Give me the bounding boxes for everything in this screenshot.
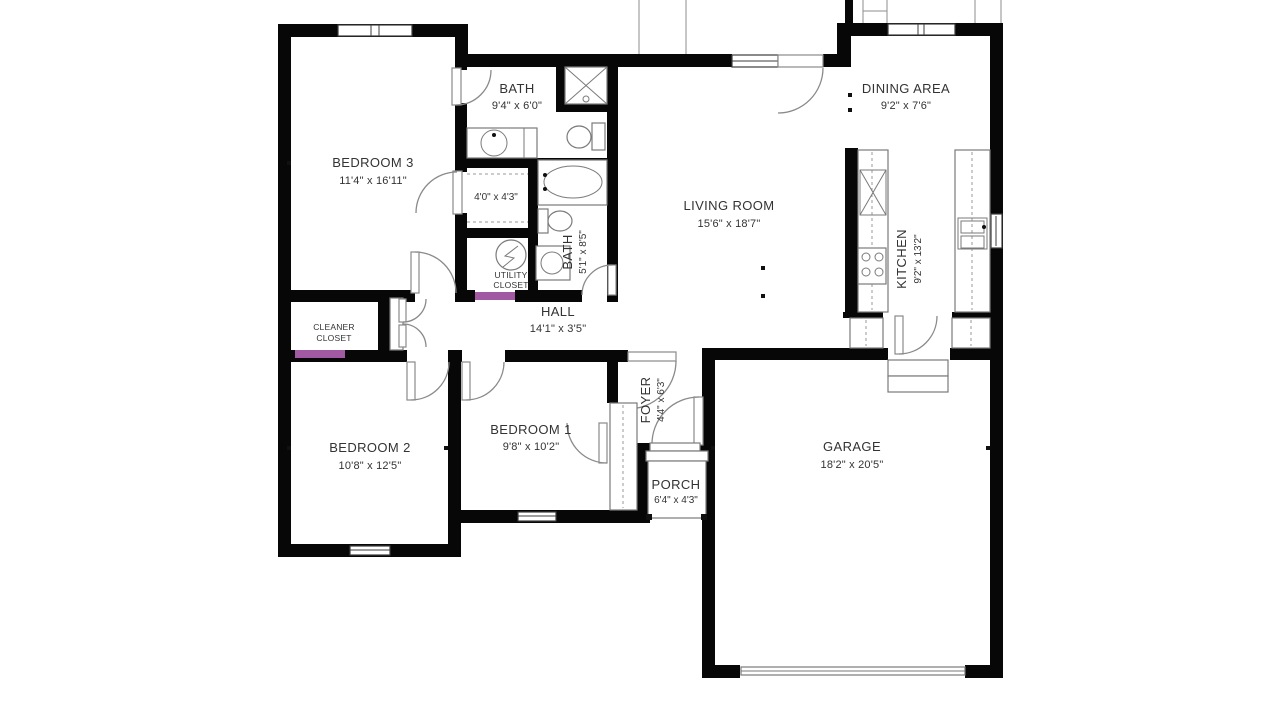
kitchen-right-counter xyxy=(955,150,990,312)
main-bath-vanity-sink xyxy=(467,128,537,158)
dining-window xyxy=(888,24,955,35)
room-cleaner-closet: CLEANER CLOSET xyxy=(313,322,355,343)
room-dims-bedroom3: 11'4" x 16'11" xyxy=(339,175,407,187)
stove xyxy=(858,248,886,284)
room-label-kitchen: KITCHEN xyxy=(894,229,909,289)
water-heater xyxy=(496,240,526,270)
room-dims-bedroom2: 10'8" x 12'5" xyxy=(339,460,402,472)
room-dims-kitchen: 9'2" x 13'2" xyxy=(913,234,924,284)
bedroom1-closet xyxy=(610,403,637,510)
floor-plan-svg: BEDROOM 3 11'4" x 16'11" BATH 9'4" x 6'0… xyxy=(0,0,1280,720)
bathtub xyxy=(538,160,607,205)
room-label-foyer: FOYER xyxy=(638,377,653,424)
room-label-bedroom2: BEDROOM 2 xyxy=(329,440,411,455)
room-label-bath-main: BATH xyxy=(499,81,534,96)
living-room-window xyxy=(732,55,778,67)
room-label-cleaner-line2: CLOSET xyxy=(316,333,351,343)
room-label-porch: PORCH xyxy=(652,477,701,492)
room-dims-dining-area: 9'2" x 7'6" xyxy=(881,100,931,112)
cleaner-closet-sliding-door xyxy=(295,350,345,358)
room-label-utility-line1: UTILITY xyxy=(494,270,527,280)
room-label-garage: GARAGE xyxy=(823,439,881,454)
utility-closet-sliding-door xyxy=(475,292,515,300)
room-label-bedroom3: BEDROOM 3 xyxy=(332,155,414,170)
room-dims-porch: 6'4" x 4'3" xyxy=(654,495,698,506)
room-label-utility-line2: CLOSET xyxy=(493,280,528,290)
room-dims-bath-hall: 5'1" x 8'5" xyxy=(578,230,589,274)
room-porch: PORCH 6'4" x 4'3" xyxy=(652,477,701,506)
room-label-dining-area: DINING AREA xyxy=(862,81,950,96)
bedroom2-window xyxy=(350,546,390,555)
bedroom1-window xyxy=(518,512,556,521)
room-utility-closet: UTILITY CLOSET xyxy=(493,270,528,290)
room-dims-hall: 14'1" x 3'5" xyxy=(530,323,587,335)
shower xyxy=(565,67,607,104)
room-dims-closet-bedroom3: 4'0" x 4'3" xyxy=(474,192,518,203)
room-dims-bedroom1: 9'8" x 10'2" xyxy=(503,441,560,453)
kitchen-window xyxy=(991,214,1002,248)
garage-steps xyxy=(888,360,948,392)
room-dims-living-room: 15'6" x 18'7" xyxy=(698,218,761,230)
room-label-bath-hall: BATH xyxy=(560,234,575,269)
room-label-living-room: LIVING ROOM xyxy=(683,198,774,213)
room-label-cleaner-line1: CLEANER xyxy=(313,322,355,332)
room-bath-hall: BATH 5'1" x 8'5" xyxy=(560,230,589,274)
room-closet-bedroom3: 4'0" x 4'3" xyxy=(474,192,518,203)
room-foyer: FOYER 4'4" x 6'3" xyxy=(638,377,667,424)
room-dims-foyer: 4'4" x 6'3" xyxy=(656,378,667,422)
room-dims-bath-main: 9'4" x 6'0" xyxy=(492,100,542,112)
hall-bath-toilet xyxy=(538,209,572,233)
bedroom3-window xyxy=(338,25,412,36)
room-dims-garage: 18'2" x 20'5" xyxy=(821,459,884,471)
room-label-bedroom1: BEDROOM 1 xyxy=(490,422,572,437)
room-label-hall: HALL xyxy=(541,304,575,319)
garage-door xyxy=(741,667,965,675)
kitchen-left-counter xyxy=(858,150,888,312)
